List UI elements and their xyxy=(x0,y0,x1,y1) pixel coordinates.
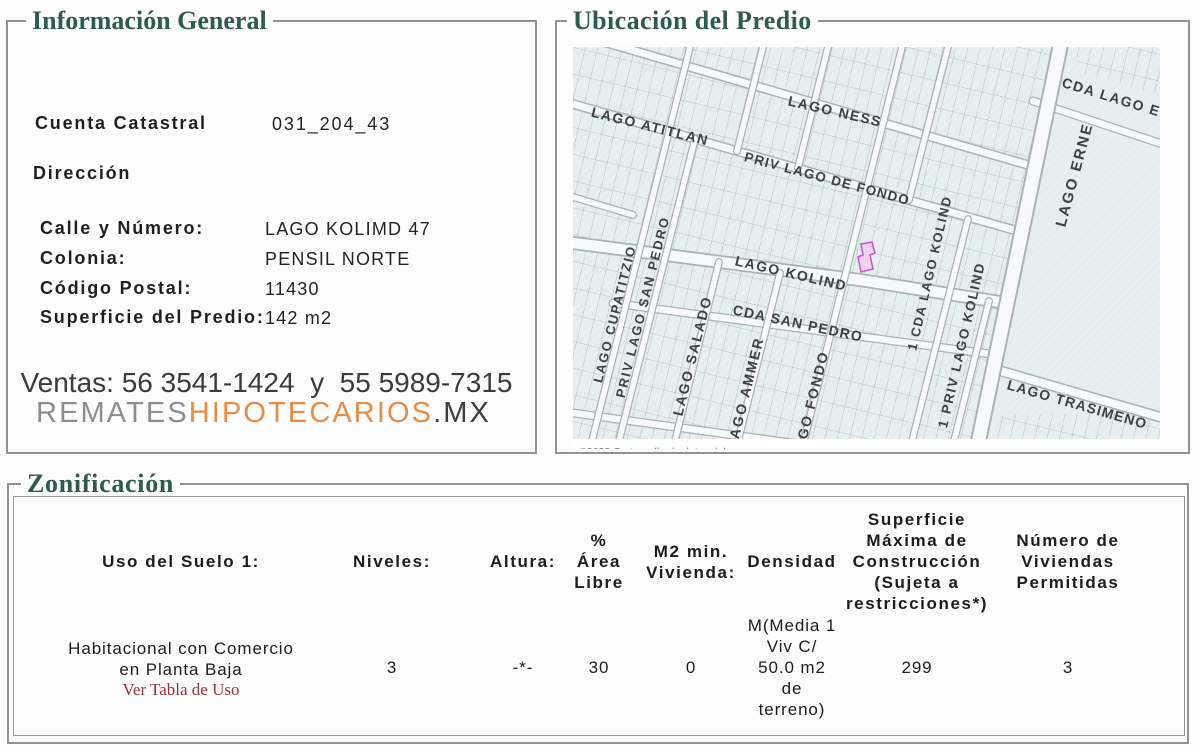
svg-text:©2023 Cartografía de datos d: ©2023 Cartografía de datos del mapa xyxy=(579,446,755,449)
